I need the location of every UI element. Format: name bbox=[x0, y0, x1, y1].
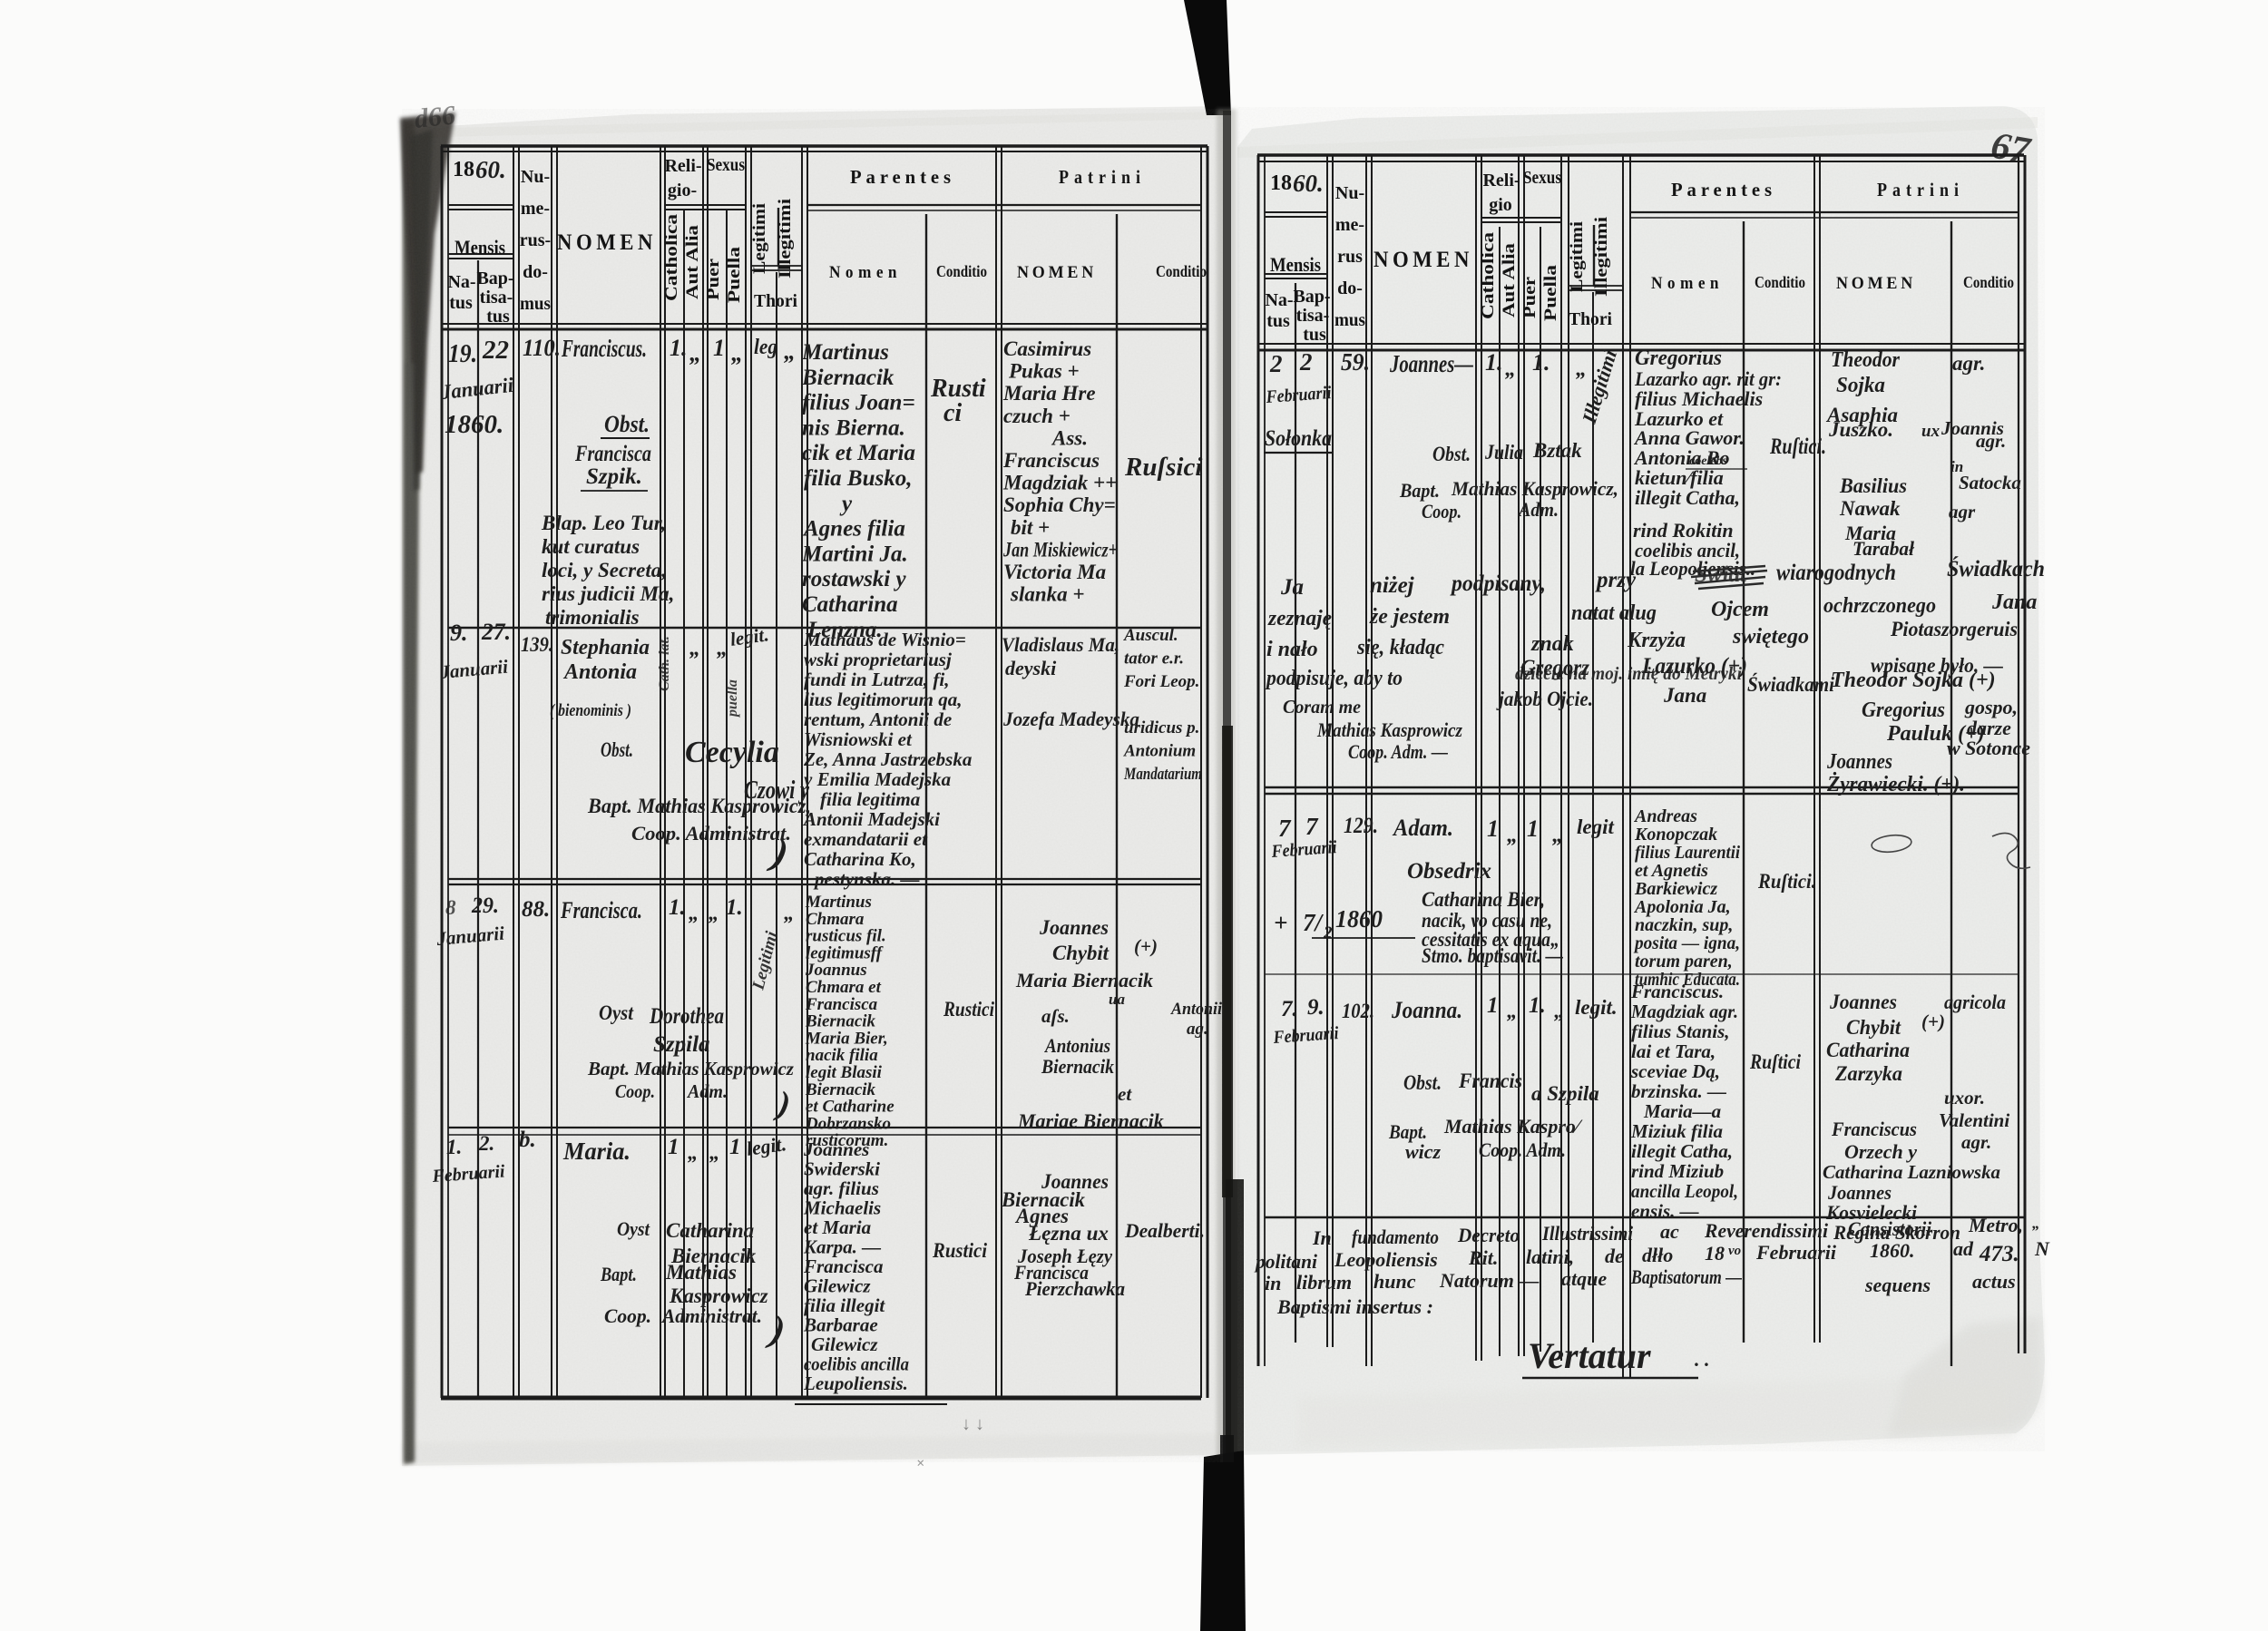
svg-text:Gregorius: Gregorius bbox=[1862, 698, 1945, 722]
svg-text:Mathias Kasprowicz,: Mathias Kasprowicz, bbox=[1451, 477, 1618, 500]
svg-text:Ruſtici.: Ruſtici. bbox=[1769, 435, 1826, 459]
svg-text:hunc: hunc bbox=[1374, 1270, 1416, 1293]
svg-text:Coop.: Coop. bbox=[604, 1304, 651, 1327]
svg-text:Obst.: Obst. bbox=[601, 738, 633, 761]
svg-text:ua: ua bbox=[1109, 991, 1125, 1008]
svg-text:„: „ bbox=[1552, 824, 1563, 847]
svg-text:Obst.: Obst. bbox=[604, 411, 650, 437]
svg-text:Andreas: Andreas bbox=[1633, 806, 1697, 826]
svg-text:rus-: rus- bbox=[520, 230, 551, 250]
svg-text:„: „ bbox=[2032, 1215, 2040, 1232]
svg-text:Świadkach: Świadkach bbox=[1947, 556, 2045, 581]
svg-text:Świadkami: Świadkami bbox=[1747, 672, 1835, 696]
svg-text:Mariae Biernacik: Mariae Biernacik bbox=[1017, 1109, 1164, 1132]
svg-text:i nało: i nało bbox=[1266, 638, 1318, 661]
svg-text:Martini Ja.: Martini Ja. bbox=[801, 542, 908, 566]
svg-text:7: 7 bbox=[1278, 815, 1292, 842]
svg-text:Blap. Leo Tur,: Blap. Leo Tur, bbox=[541, 512, 666, 534]
svg-text:Franciscus: Franciscus bbox=[1831, 1118, 1917, 1140]
svg-text:Barkiewicz: Barkiewicz bbox=[1634, 879, 1717, 899]
svg-text:Gregorz: Gregorz bbox=[1520, 656, 1589, 680]
svg-text:„: „ bbox=[709, 1141, 720, 1164]
svg-text:Dorothea: Dorothea bbox=[649, 1004, 724, 1029]
svg-text:bit +: bit + bbox=[1011, 516, 1050, 539]
svg-text:ad: ad bbox=[1953, 1237, 1974, 1260]
svg-text:Ruſtici: Ruſtici bbox=[1749, 1050, 1801, 1073]
svg-text:Sexus: Sexus bbox=[1523, 168, 1561, 188]
svg-text:Joannes—: Joannes— bbox=[1389, 350, 1473, 377]
svg-text:Joannes: Joannes bbox=[803, 1138, 869, 1160]
svg-text:b.: b. bbox=[519, 1128, 536, 1152]
svg-text:exmandatarii et: exmandatarii et bbox=[804, 828, 928, 850]
svg-text:29.: 29. bbox=[471, 894, 499, 918]
svg-text:slanka +: slanka + bbox=[1010, 583, 1085, 606]
svg-text:1.: 1. bbox=[446, 1136, 462, 1158]
svg-text:illegit Catha,: illegit Catha, bbox=[1631, 1140, 1733, 1162]
svg-text:Szpila: Szpila bbox=[653, 1032, 710, 1057]
svg-text:me-: me- bbox=[521, 199, 550, 219]
svg-text:tator e.r.: tator e.r. bbox=[1124, 649, 1184, 669]
svg-text:Francisca.: Francisca. bbox=[560, 897, 642, 923]
svg-text:In: In bbox=[1312, 1226, 1332, 1249]
svg-text:Żyrawiecki. (+).: Żyrawiecki. (+). bbox=[1826, 772, 1965, 796]
svg-text:„: „ bbox=[731, 340, 743, 366]
svg-text:filius Stanis,: filius Stanis, bbox=[1631, 1021, 1730, 1042]
svg-text:tus: tus bbox=[449, 293, 473, 313]
svg-text:Franciscus.: Franciscus. bbox=[1630, 981, 1724, 1002]
svg-text:. .: . . bbox=[1695, 1348, 1710, 1371]
svg-text:Julia: Julia bbox=[1484, 441, 1523, 464]
svg-text:Biernacik: Biernacik bbox=[1041, 1055, 1114, 1078]
svg-text:Coop.: Coop. bbox=[1422, 500, 1461, 523]
svg-text:filia legitima: filia legitima bbox=[820, 788, 920, 810]
svg-text:Mathias: Mathias bbox=[665, 1261, 737, 1284]
svg-text:1860.: 1860. bbox=[445, 410, 503, 439]
svg-text:Bapt.: Bapt. bbox=[600, 1263, 637, 1285]
svg-text:filia illegit: filia illegit bbox=[804, 1294, 885, 1316]
svg-text:↓ ↓: ↓ ↓ bbox=[962, 1414, 984, 1434]
svg-text:Martinus: Martinus bbox=[801, 340, 889, 365]
svg-text:ac: ac bbox=[1660, 1220, 1679, 1243]
svg-text:„: „ bbox=[689, 902, 699, 924]
svg-text:Miziuk filia: Miziuk filia bbox=[1630, 1120, 1723, 1142]
svg-text:mus: mus bbox=[1334, 310, 1365, 330]
svg-text:Rit.: Rit. bbox=[1468, 1246, 1498, 1269]
svg-text:Illustrissimi: Illustrissimi bbox=[1541, 1222, 1634, 1245]
svg-text:Theodor: Theodor bbox=[1831, 348, 1901, 372]
svg-text:Juszko.: Juszko. bbox=[1828, 418, 1893, 441]
svg-text:Reli-: Reli- bbox=[1482, 171, 1520, 190]
svg-text:Ze, Anna Jastrzebska: Ze, Anna Jastrzebska bbox=[803, 748, 972, 770]
svg-text:Joanna.: Joanna. bbox=[1391, 997, 1462, 1023]
svg-text:Cecylia: Cecylia bbox=[685, 736, 779, 769]
svg-text:Coop. Adm.: Coop. Adm. bbox=[1479, 1138, 1566, 1161]
svg-text:gospo,: gospo, bbox=[1964, 696, 2018, 718]
svg-text:et Maria: et Maria bbox=[804, 1216, 871, 1238]
svg-text:fundamento: fundamento bbox=[1352, 1226, 1439, 1248]
svg-text:+: + bbox=[1274, 909, 1287, 936]
svg-text:posita — igna,: posita — igna, bbox=[1633, 933, 1740, 953]
svg-text:Consistorii: Consistorii bbox=[1848, 1217, 1932, 1240]
svg-text:Antonii Madejski: Antonii Madejski bbox=[802, 808, 940, 830]
svg-text:Obst.: Obst. bbox=[1432, 443, 1471, 465]
svg-text:Sexus: Sexus bbox=[707, 155, 745, 175]
svg-text:w Sotonce: w Sotonce bbox=[1947, 737, 2030, 759]
svg-text:dłło: dłło bbox=[1642, 1244, 1673, 1266]
svg-text:tus: tus bbox=[1303, 325, 1326, 345]
svg-text:vo: vo bbox=[1728, 1244, 1741, 1258]
svg-text:Ruſsici: Ruſsici bbox=[1124, 453, 1202, 482]
svg-text:19.: 19. bbox=[448, 339, 477, 368]
svg-text:Leupoliensis.: Leupoliensis. bbox=[803, 1372, 908, 1394]
svg-text:Coop. Adm. —: Coop. Adm. — bbox=[1348, 740, 1448, 763]
svg-text:do-: do- bbox=[1337, 278, 1363, 298]
svg-text:1.: 1. bbox=[1485, 349, 1503, 376]
svg-text:me-: me- bbox=[1335, 215, 1364, 235]
svg-text:Gilewicz: Gilewicz bbox=[811, 1333, 878, 1355]
svg-text:Swiderski: Swiderski bbox=[804, 1158, 880, 1180]
svg-text:Maria Hre: Maria Hre bbox=[1002, 382, 1096, 405]
svg-text:Fori Leop.: Fori Leop. bbox=[1123, 672, 1199, 691]
svg-text:Bap-: Bap- bbox=[476, 269, 513, 288]
svg-text:2.: 2. bbox=[478, 1132, 494, 1155]
svg-text:Leopoliensis: Leopoliensis bbox=[1334, 1248, 1438, 1271]
svg-text:×: × bbox=[916, 1456, 924, 1471]
svg-text:Conditio: Conditio bbox=[1755, 273, 1805, 291]
svg-text:Chybit: Chybit bbox=[1846, 1016, 1901, 1039]
svg-text:Catholica: Catholica bbox=[662, 213, 681, 301]
svg-text:deyski: deyski bbox=[1005, 657, 1057, 679]
svg-text:Dealberti.: Dealberti. bbox=[1124, 1219, 1205, 1242]
svg-text:Joannes: Joannes bbox=[1826, 750, 1892, 774]
svg-text:Aut Alia: Aut Alia bbox=[1500, 242, 1519, 317]
svg-text:ag.: ag. bbox=[1187, 1020, 1208, 1039]
svg-text:Francisca: Francisca bbox=[803, 1255, 884, 1277]
svg-text:NOMEN: NOMEN bbox=[1836, 274, 1916, 293]
svg-text:Catharina: Catharina bbox=[802, 592, 898, 617]
svg-text:„: „ bbox=[688, 1141, 699, 1164]
svg-text:gio-: gio- bbox=[668, 181, 697, 200]
svg-text:2: 2 bbox=[1299, 348, 1313, 376]
svg-text:rostawski y: rostawski y bbox=[802, 567, 907, 591]
svg-text:1: 1 bbox=[729, 1135, 741, 1159]
svg-text:Joannes: Joannes bbox=[1829, 991, 1897, 1013]
svg-text:(+): (+) bbox=[1134, 935, 1158, 957]
svg-text:Reverendissimi: Reverendissimi bbox=[1704, 1219, 1829, 1242]
svg-text:Catharina Ko,: Catharina Ko, bbox=[804, 848, 916, 870]
svg-text:jakob Ojcie.: jakob Ojcie. bbox=[1495, 688, 1593, 710]
svg-text:Vertatur: Vertatur bbox=[1528, 1335, 1651, 1376]
svg-text:agr.: agr. bbox=[1976, 430, 2006, 452]
svg-text:Antonia: Antonia bbox=[562, 660, 637, 684]
svg-text:Maria.: Maria. bbox=[562, 1138, 631, 1165]
svg-text:59.: 59. bbox=[1341, 348, 1370, 376]
svg-text:( bienominis ): ( bienominis ) bbox=[550, 701, 631, 720]
svg-text:„: „ bbox=[1554, 1000, 1565, 1022]
svg-text:Casimirus: Casimirus bbox=[1003, 337, 1091, 360]
svg-text:puella: puella bbox=[725, 679, 740, 718]
svg-text:atque: atque bbox=[1561, 1267, 1607, 1290]
svg-text:Pukas +: Pukas + bbox=[1008, 360, 1080, 383]
svg-text:Bap-: Bap- bbox=[1293, 287, 1330, 307]
svg-text:Nawak: Nawak bbox=[1839, 497, 1901, 520]
svg-text:Agnes filia: Agnes filia bbox=[802, 517, 905, 542]
svg-text:Stephania: Stephania bbox=[561, 636, 650, 659]
svg-text:NOMEN: NOMEN bbox=[557, 230, 657, 255]
svg-text:Catharina: Catharina bbox=[666, 1219, 754, 1242]
svg-text:Februarii: Februarii bbox=[1755, 1241, 1837, 1264]
svg-text:ochrzczonego: ochrzczonego bbox=[1823, 594, 1936, 618]
svg-text:legit.: legit. bbox=[1575, 996, 1618, 1019]
svg-text:1.: 1. bbox=[670, 335, 688, 361]
svg-text:Patrini: Patrini bbox=[1877, 179, 1964, 200]
svg-text:cik et Maria: cik et Maria bbox=[802, 441, 915, 465]
svg-text:Franciscus: Franciscus bbox=[1002, 449, 1100, 472]
svg-text:ci: ci bbox=[943, 399, 962, 427]
svg-text:Pierzchawka: Pierzchawka bbox=[1024, 1277, 1125, 1300]
svg-text:przy: przy bbox=[1595, 568, 1637, 592]
svg-text:22: 22 bbox=[482, 336, 509, 365]
svg-text:2: 2 bbox=[1323, 923, 1333, 942]
svg-text:torum paren,: torum paren, bbox=[1635, 952, 1733, 972]
svg-text:agr: agr bbox=[1949, 501, 1976, 523]
svg-text:zeznaję: zeznaję bbox=[1267, 607, 1332, 630]
svg-text:Conditio: Conditio bbox=[1156, 262, 1207, 280]
svg-text:rind Miziub: rind Miziub bbox=[1631, 1160, 1724, 1182]
svg-text:Bztak: Bztak bbox=[1532, 439, 1582, 462]
svg-text:60.: 60. bbox=[475, 156, 506, 183]
svg-text:rentum, Antonii de: rentum, Antonii de bbox=[804, 708, 952, 730]
svg-text:Jan Miskiewicz+: Jan Miskiewicz+ bbox=[1002, 538, 1118, 561]
svg-text:1: 1 bbox=[668, 1135, 679, 1159]
svg-text:fundi in Lutrza, fi,: fundi in Lutrza, fi, bbox=[804, 669, 949, 690]
svg-text:Baptismi insertus :: Baptismi insertus : bbox=[1276, 1295, 1433, 1318]
svg-text:ux: ux bbox=[1921, 422, 1941, 441]
svg-text:politani: politani bbox=[1254, 1250, 1318, 1273]
svg-text:„: „ bbox=[689, 637, 700, 660]
svg-text:NOMEN: NOMEN bbox=[1374, 248, 1473, 272]
svg-text:Biernacik: Biernacik bbox=[801, 366, 894, 390]
svg-text:czuch +: czuch + bbox=[1003, 405, 1070, 427]
svg-text:agricola: agricola bbox=[1944, 991, 2006, 1013]
svg-text:znak: znak bbox=[1530, 632, 1574, 656]
svg-text:Mathias Kasprowicz: Mathias Kasprowicz bbox=[1316, 718, 1462, 741]
svg-text:Sojka: Sojka bbox=[1836, 374, 1885, 397]
svg-text:podpisany,: podpisany, bbox=[1450, 571, 1546, 596]
svg-text:Legitimi: Legitimi bbox=[1568, 221, 1587, 292]
svg-text:2: 2 bbox=[1269, 350, 1283, 377]
svg-text:do-: do- bbox=[523, 262, 548, 282]
svg-text:Zarzyka: Zarzyka bbox=[1834, 1062, 1902, 1085]
svg-text:Nu-: Nu- bbox=[521, 167, 550, 187]
svg-text:Decreto: Decreto bbox=[1457, 1224, 1520, 1246]
svg-text:leg: leg bbox=[754, 336, 777, 359]
svg-text:tus: tus bbox=[486, 307, 510, 327]
svg-text:Chybit: Chybit bbox=[1052, 942, 1110, 964]
svg-text:Puer: Puer bbox=[1520, 276, 1540, 318]
svg-text:Ja: Ja bbox=[1280, 575, 1304, 600]
svg-text:pestynska. —: pestynska. — bbox=[813, 868, 920, 890]
svg-text:9.: 9. bbox=[1307, 995, 1325, 1020]
svg-text:1: 1 bbox=[713, 335, 725, 361]
svg-text:Catharina Bier,: Catharina Bier, bbox=[1422, 888, 1545, 911]
svg-text:„: „ bbox=[709, 902, 719, 924]
svg-text:18: 18 bbox=[453, 158, 474, 181]
svg-text:Illegitimi: Illegitimi bbox=[776, 199, 795, 278]
svg-text:librum: librum bbox=[1296, 1271, 1352, 1294]
svg-text:tisa-: tisa- bbox=[1296, 306, 1330, 326]
svg-text:1.: 1. bbox=[669, 895, 686, 920]
svg-text:Illegitimi: Illegitimi bbox=[1592, 217, 1611, 297]
svg-text:wski proprietariusj: wski proprietariusj bbox=[804, 649, 952, 670]
svg-text:Lazurko (+): Lazurko (+) bbox=[1641, 654, 1747, 679]
svg-text:Na-: Na- bbox=[1265, 290, 1293, 310]
svg-text:Jozefa Madeyska: Jozefa Madeyska bbox=[1002, 708, 1139, 730]
svg-text:(+): (+) bbox=[1921, 1011, 1945, 1032]
svg-text:Krzyża: Krzyża bbox=[1627, 629, 1686, 652]
svg-text:kut curatus: kut curatus bbox=[542, 535, 640, 558]
svg-text:sequens: sequens bbox=[1864, 1274, 1931, 1296]
svg-text:wicz: wicz bbox=[1405, 1140, 1442, 1163]
svg-text:naczkin, sup,: naczkin, sup, bbox=[1635, 915, 1733, 935]
svg-text:się, kładąc: się, kładąc bbox=[1356, 636, 1444, 659]
svg-text:Adm.: Adm. bbox=[686, 1080, 728, 1102]
svg-text:1860.: 1860. bbox=[1870, 1239, 1915, 1262]
svg-text:uridicus p.: uridicus p. bbox=[1124, 718, 1199, 737]
svg-text:18: 18 bbox=[1270, 171, 1292, 195]
svg-text:filia Busko,: filia Busko, bbox=[804, 466, 912, 491]
svg-text:Michaelis: Michaelis bbox=[803, 1197, 881, 1219]
svg-text:139.: 139. bbox=[521, 633, 553, 656]
svg-text:niżej: niżej bbox=[1370, 573, 1415, 598]
svg-text:Magdziak ++: Magdziak ++ bbox=[1002, 472, 1117, 494]
svg-text:Mandatarium: Mandatarium bbox=[1123, 765, 1202, 784]
svg-text:de: de bbox=[1605, 1245, 1624, 1267]
svg-text:Obst.: Obst. bbox=[1403, 1071, 1442, 1094]
svg-text:et: et bbox=[1118, 1083, 1132, 1105]
svg-text:podpisuje, aby to: podpisuje, aby to bbox=[1265, 667, 1403, 690]
svg-text:88.: 88. bbox=[522, 897, 550, 922]
svg-text:Coram me: Coram me bbox=[1283, 696, 1361, 718]
svg-text:Administrat.: Administrat. bbox=[660, 1304, 762, 1327]
svg-text:Parentes: Parentes bbox=[1671, 179, 1776, 200]
svg-text:agr. filius: agr. filius bbox=[804, 1177, 879, 1199]
svg-text:Catharina Lazniowska: Catharina Lazniowska bbox=[1823, 1161, 2000, 1183]
svg-text:lius legitimorum qa,: lius legitimorum qa, bbox=[804, 689, 962, 710]
svg-text:Natorum —: Natorum — bbox=[1439, 1269, 1539, 1292]
svg-text:nis Bierna.: nis Bierna. bbox=[802, 415, 905, 440]
svg-text:110.: 110. bbox=[523, 335, 561, 361]
svg-text:„: „ bbox=[784, 338, 796, 365]
svg-text:Karpa. —: Karpa. — bbox=[803, 1236, 881, 1258]
svg-text:Ojcem: Ojcem bbox=[1711, 598, 1769, 621]
svg-text:Thori: Thori bbox=[754, 291, 797, 311]
svg-text:Parentes: Parentes bbox=[850, 166, 955, 188]
svg-text:d66: d66 bbox=[413, 100, 456, 134]
svg-text:trimonialis: trimonialis bbox=[545, 606, 640, 629]
svg-text:lai et Tara,: lai et Tara, bbox=[1631, 1040, 1716, 1062]
svg-text:agr.: agr. bbox=[1961, 1131, 1991, 1153]
svg-text:rus: rus bbox=[1337, 247, 1363, 267]
svg-text:filius Laurentii: filius Laurentii bbox=[1635, 843, 1740, 863]
svg-text:473.: 473. bbox=[1979, 1242, 2019, 1266]
svg-text:Rustici: Rustici bbox=[932, 1239, 987, 1262]
svg-text:Joannes: Joannes bbox=[1039, 916, 1109, 939]
svg-text:mus: mus bbox=[520, 294, 551, 314]
svg-text:ensis. —: ensis. — bbox=[1631, 1200, 1699, 1222]
svg-text:129.: 129. bbox=[1344, 814, 1378, 838]
svg-text:Bapt.: Bapt. bbox=[1399, 479, 1440, 502]
svg-text:Francisca: Francisca bbox=[574, 442, 651, 466]
svg-text:„: „ bbox=[1507, 824, 1518, 847]
svg-text:aſs.: aſs. bbox=[1041, 1005, 1070, 1027]
svg-text:Aut Alia: Aut Alia bbox=[683, 224, 702, 299]
svg-text:Thori: Thori bbox=[1569, 309, 1612, 329]
svg-text:że jestem: że jestem bbox=[1369, 605, 1450, 629]
svg-text:Valentini: Valentini bbox=[1939, 1109, 2009, 1131]
svg-text:Nomen: Nomen bbox=[829, 263, 902, 282]
svg-text:Ass.: Ass. bbox=[1051, 426, 1088, 449]
svg-text:tisa-: tisa- bbox=[480, 288, 513, 308]
svg-text:Rustici: Rustici bbox=[943, 998, 994, 1021]
svg-text:Tarabał: Tarabał bbox=[1853, 537, 1915, 560]
svg-text:swiętego: swiętego bbox=[1732, 625, 1809, 649]
svg-text:1: 1 bbox=[1487, 993, 1499, 1018]
svg-text:Basilius: Basilius bbox=[1839, 474, 1907, 497]
svg-text:uxor.: uxor. bbox=[1944, 1087, 1985, 1108]
svg-text:Antonium: Antonium bbox=[1123, 742, 1196, 761]
svg-text:latini,: latini, bbox=[1526, 1245, 1574, 1268]
svg-text:1860: 1860 bbox=[1335, 905, 1383, 933]
svg-text:18: 18 bbox=[1705, 1242, 1725, 1265]
svg-text:Oyst: Oyst bbox=[617, 1217, 650, 1240]
svg-text:Maria Biernacik: Maria Biernacik bbox=[1015, 969, 1153, 991]
svg-text:gio: gio bbox=[1489, 195, 1512, 215]
svg-text:Cath. lat.: Cath. lat. bbox=[657, 636, 672, 691]
svg-text:1: 1 bbox=[1487, 815, 1499, 842]
svg-text:Na-: Na- bbox=[447, 272, 475, 292]
svg-text:7: 7 bbox=[1305, 813, 1319, 840]
svg-text:7/: 7/ bbox=[1303, 909, 1325, 936]
svg-text:Antonius: Antonius bbox=[1043, 1034, 1110, 1057]
svg-text:1: 1 bbox=[1527, 815, 1539, 842]
svg-text:Jana: Jana bbox=[1991, 591, 2037, 614]
svg-text:Obsedrix: Obsedrix bbox=[1407, 859, 1491, 884]
svg-text:„: „ bbox=[1507, 1000, 1518, 1022]
svg-text:„: „ bbox=[1505, 357, 1516, 381]
svg-text:„: „ bbox=[1576, 357, 1587, 381]
svg-text:Satocka: Satocka bbox=[1959, 472, 2021, 493]
svg-text:ancilla Leopol,: ancilla Leopol, bbox=[1631, 1180, 1738, 1202]
svg-text:„: „ bbox=[784, 902, 795, 924]
svg-text:Ruſtici.: Ruſtici. bbox=[1757, 870, 1816, 893]
svg-text:Metro,: Metro, bbox=[1968, 1214, 2023, 1236]
svg-text:Szpik.: Szpik. bbox=[586, 464, 642, 489]
svg-text:wiarogodnych: wiarogodnych bbox=[1776, 561, 1896, 585]
svg-text:Oyst: Oyst bbox=[599, 1001, 634, 1024]
svg-text:agr.: agr. bbox=[1952, 352, 1985, 375]
svg-text:1.: 1. bbox=[1532, 349, 1550, 376]
svg-text:legit: legit bbox=[1577, 815, 1614, 838]
svg-text:rius judicii Ma,: rius judicii Ma, bbox=[542, 582, 674, 605]
svg-text:Konopczak: Konopczak bbox=[1634, 825, 1717, 845]
svg-text:tus: tus bbox=[1266, 311, 1290, 331]
svg-text:8: 8 bbox=[445, 896, 456, 919]
svg-text:y: y bbox=[839, 492, 853, 516]
svg-text:Adm.: Adm. bbox=[1517, 498, 1559, 521]
svg-text:Jana: Jana bbox=[1663, 684, 1706, 707]
svg-text:Barbarae: Barbarae bbox=[803, 1314, 878, 1336]
